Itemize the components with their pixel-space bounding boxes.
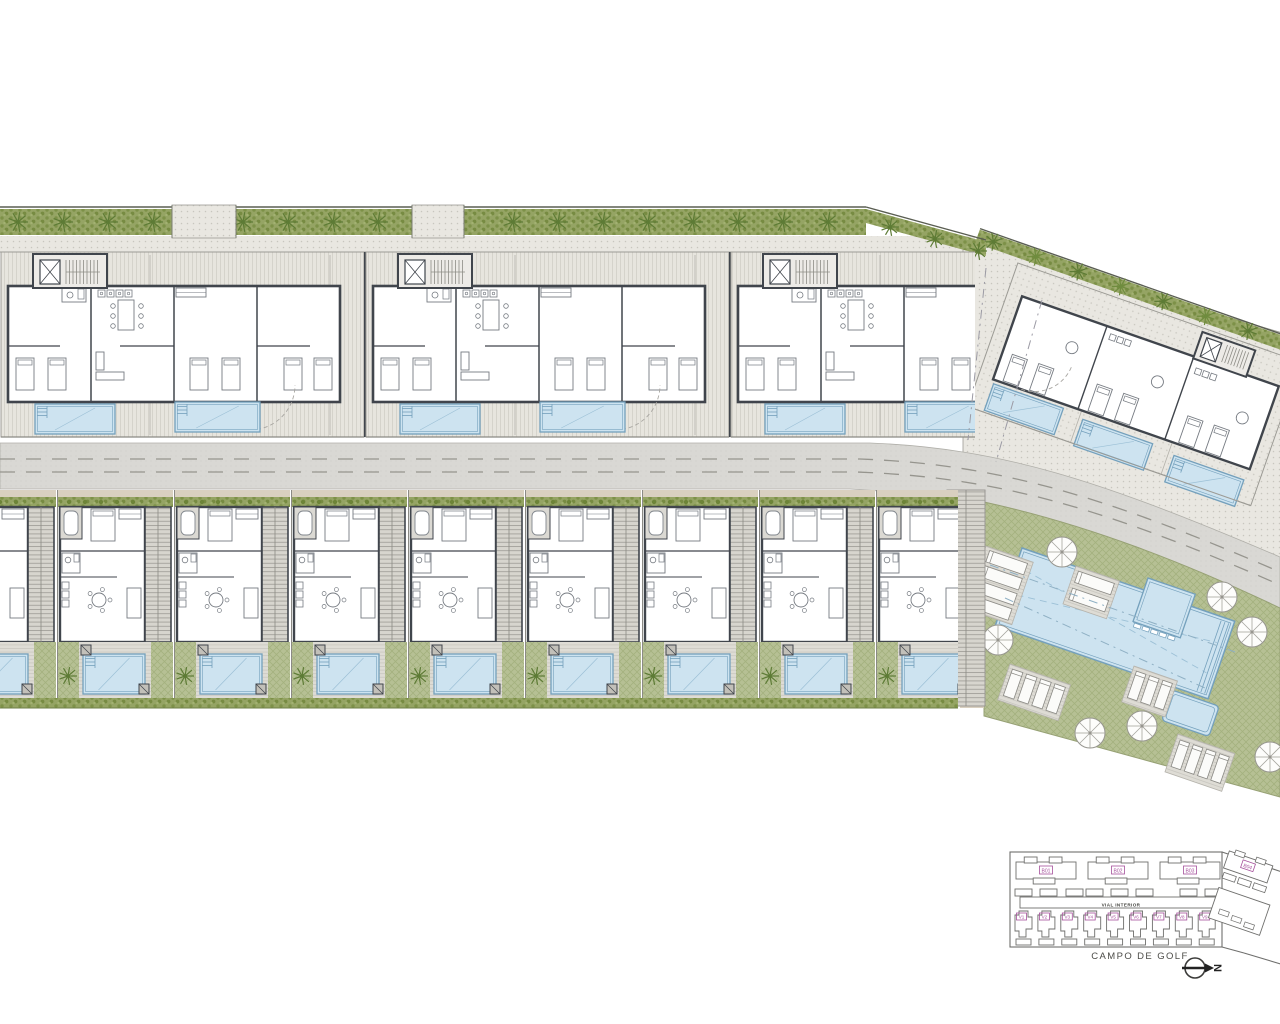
pool [785, 654, 847, 694]
parasol-icon [1075, 718, 1105, 748]
pool [400, 404, 480, 434]
parasol-icon [1207, 582, 1237, 612]
apartment-building [1, 252, 365, 437]
pool [668, 654, 730, 694]
svg-text:V8: V8 [1179, 915, 1185, 920]
svg-text:V6: V6 [1133, 915, 1139, 920]
svg-text:V5: V5 [1110, 915, 1116, 920]
pool [551, 654, 613, 694]
svg-text:B02: B02 [1114, 869, 1123, 875]
villa-unit [409, 490, 525, 698]
parasol-icon [1255, 742, 1280, 772]
villa-unit [526, 490, 642, 698]
top-villa-row [1, 252, 1095, 437]
pool [175, 402, 260, 432]
north-label: N [1211, 964, 1223, 972]
parasol-icon [1237, 617, 1267, 647]
keyplan-golf-label: CAMPO DE GOLF [1091, 951, 1188, 962]
pool [540, 402, 625, 432]
svg-text:B03: B03 [1186, 869, 1195, 875]
pool [35, 404, 115, 434]
keyplan-road-label: VIAL INTERIOR [1102, 903, 1141, 908]
svg-text:V3: V3 [1065, 915, 1071, 920]
pool [200, 654, 262, 694]
svg-text:V9: V9 [1202, 915, 1208, 920]
svg-text:B01: B01 [1042, 869, 1051, 875]
parasol-icon [983, 625, 1013, 655]
svg-text:V4: V4 [1087, 915, 1093, 920]
villa-unit [175, 490, 291, 698]
bottom-villa-row [0, 490, 992, 708]
villa-unit [292, 490, 408, 698]
site-plan-page: B01B02B03V1V2V3V4V5V6V7V8V9 VIAL INTERIO… [0, 0, 1280, 1024]
parasol-icon [1127, 711, 1157, 741]
villa-unit [643, 490, 759, 698]
svg-text:V1: V1 [1019, 915, 1025, 920]
pool [902, 654, 964, 694]
stair-core [33, 254, 107, 288]
parasol-icon [1047, 537, 1077, 567]
svg-text:V7: V7 [1156, 915, 1162, 920]
pool [434, 654, 496, 694]
villa-unit [0, 490, 56, 698]
villa-unit [760, 490, 876, 698]
stair-core [398, 254, 472, 288]
pool [765, 404, 845, 434]
stair-core [763, 254, 837, 288]
svg-text:V2: V2 [1042, 915, 1048, 920]
pool [317, 654, 379, 694]
pool [83, 654, 145, 694]
villa-unit [58, 490, 174, 698]
site-plan-drawing: B01B02B03V1V2V3V4V5V6V7V8V9 VIAL INTERIO… [0, 0, 1280, 1024]
apartment-building [366, 252, 730, 437]
